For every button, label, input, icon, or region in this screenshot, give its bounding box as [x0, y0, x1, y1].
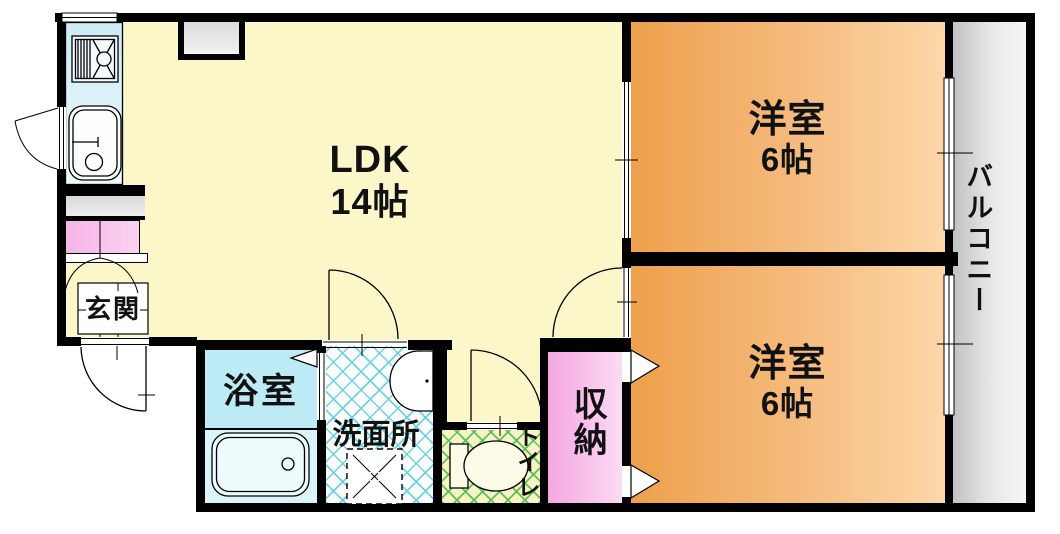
- entrance-step: [62, 253, 148, 263]
- wall-segment: [433, 340, 447, 430]
- wall-segment: [622, 382, 631, 466]
- bedroom-bottom-size: 6帖: [690, 386, 885, 423]
- wall-segment: [442, 422, 467, 430]
- label-bedroom-bottom: 洋室 6帖: [690, 343, 885, 423]
- wall-segment: [317, 346, 326, 353]
- label-bathroom: 浴室: [205, 372, 317, 411]
- bathtub-zone: [205, 428, 317, 505]
- wall-segment: [57, 13, 66, 108]
- ldk-size: 14帖: [270, 182, 470, 222]
- wall-segment: [196, 503, 1035, 512]
- wall-segment: [149, 337, 197, 346]
- label-bedroom-top: 洋室 6帖: [690, 99, 885, 179]
- kitchen-counter: [65, 22, 123, 185]
- wall-segment: [57, 169, 66, 346]
- wall-segment: [622, 497, 631, 503]
- label-ldk: LDK 14帖: [270, 139, 470, 222]
- entrance-duct: [62, 196, 145, 220]
- wall-segment: [945, 414, 953, 503]
- wall-segment: [196, 346, 205, 512]
- floorplan-canvas: LDK 14帖 洋室 6帖 洋室 6帖 バルコニー 玄関 浴室 洗面所 トイレ …: [0, 0, 1060, 534]
- bedroom-top-name: 洋室: [690, 99, 885, 142]
- label-entrance: 玄関: [78, 295, 148, 324]
- wall-segment: [433, 430, 442, 503]
- wall-segment: [57, 337, 81, 346]
- room-hallway: [447, 340, 540, 422]
- shoe-cabinet: [62, 220, 140, 254]
- wall-segment: [622, 238, 631, 268]
- bedroom-top-size: 6帖: [690, 142, 885, 179]
- wall-segment: [196, 340, 322, 350]
- kitchen-door-arc: [15, 107, 66, 169]
- label-closet: 収納: [568, 386, 606, 458]
- wall-segment: [622, 22, 631, 82]
- wall-segment: [55, 13, 1035, 22]
- wall-segment: [540, 346, 548, 503]
- wall-segment: [1026, 13, 1035, 512]
- bedroom-bottom-name: 洋室: [690, 343, 885, 386]
- wall-segment: [631, 252, 958, 266]
- front-door-arc: [81, 337, 155, 411]
- label-balcony: バルコニー: [962, 162, 992, 317]
- ldk-name: LDK: [270, 139, 470, 182]
- label-toilet: トイレ: [513, 425, 539, 500]
- wall-segment: [540, 338, 631, 352]
- wall-segment: [62, 185, 145, 196]
- label-washroom: 洗面所: [320, 419, 432, 451]
- wall-recess: [178, 22, 245, 60]
- wall-segment: [945, 13, 953, 79]
- wall-segment: [622, 338, 631, 352]
